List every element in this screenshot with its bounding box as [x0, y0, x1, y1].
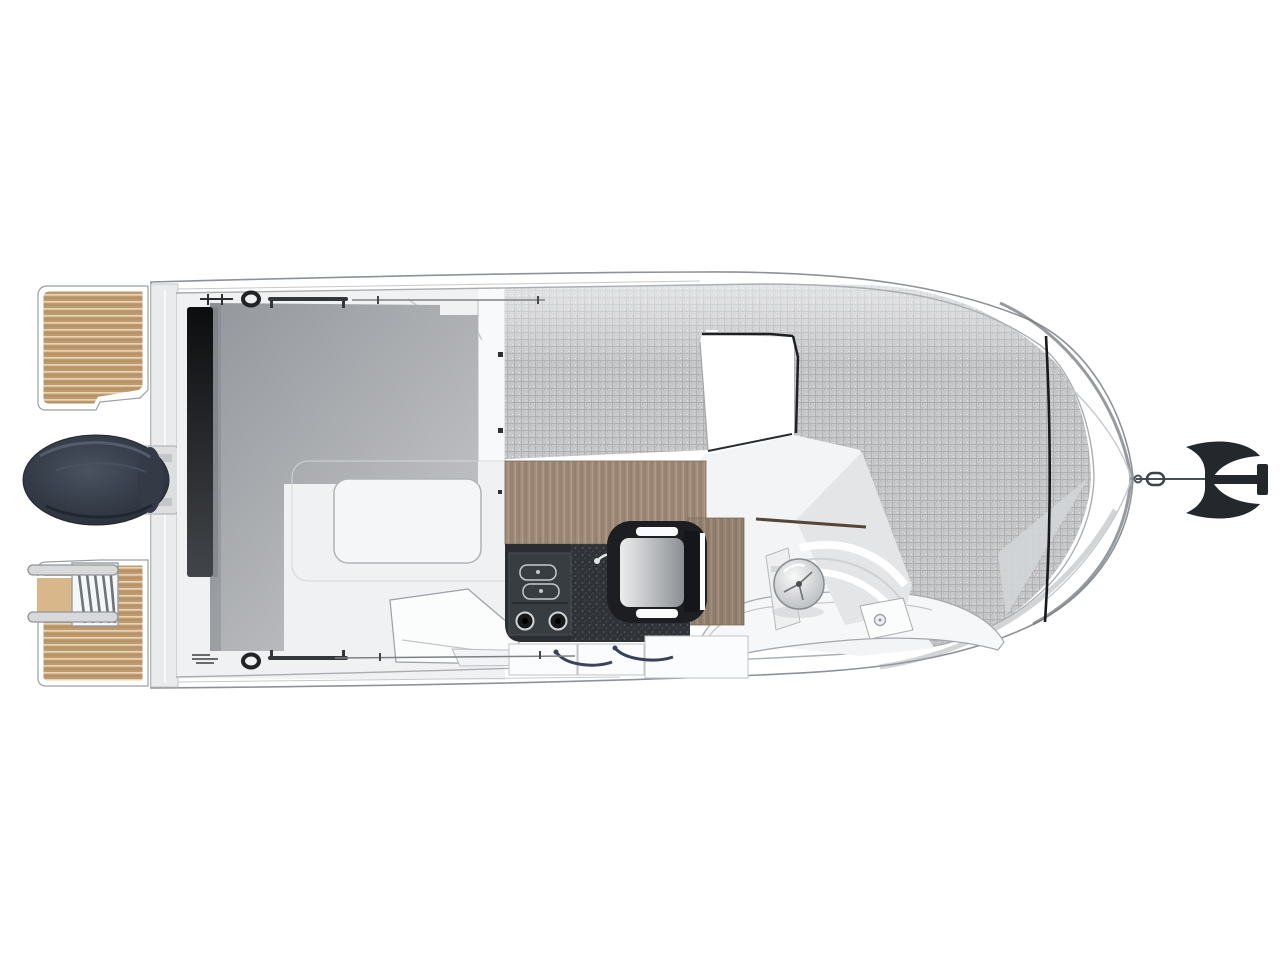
rail-stub — [342, 301, 345, 308]
pillar-fastener — [498, 352, 503, 357]
pillar-fastener — [498, 428, 503, 433]
platform-port-teak — [42, 290, 144, 405]
faucet-base — [594, 558, 600, 564]
sliding-door-shadow — [213, 307, 218, 577]
sliding-door — [187, 307, 213, 577]
seat-cushion — [620, 538, 684, 607]
stove-knob-center — [555, 618, 561, 624]
seat-back-gap — [700, 533, 705, 610]
rail-stub — [270, 650, 273, 657]
drawer-handle-end — [554, 650, 559, 655]
stove-knob-center — [522, 618, 528, 624]
anchor-assembly — [1135, 441, 1269, 518]
anchor-fluke-top — [1186, 441, 1260, 476]
ladder-rail-bottom — [28, 612, 118, 622]
anchor-stock — [1257, 464, 1268, 495]
pillar-fastener — [498, 490, 502, 494]
ladder-window — [36, 577, 74, 615]
ladder-rail-top — [28, 565, 118, 575]
seat-backrest — [684, 531, 699, 612]
plate-dot — [879, 619, 882, 622]
wheel-hub — [796, 581, 802, 587]
burner-center — [536, 570, 540, 574]
outboard-motor — [23, 435, 178, 525]
drawer-handle-end — [613, 646, 618, 651]
rail-stub — [270, 301, 273, 308]
burner-center — [539, 589, 543, 593]
seat-arm-slot — [636, 527, 678, 536]
deck-plan-canvas — [0, 0, 1280, 960]
galley-cabinet — [645, 636, 748, 678]
anchor-shank — [1205, 475, 1265, 484]
rail-stub — [342, 650, 345, 657]
windshield-pillar-strip — [478, 289, 505, 462]
grab-rail — [268, 297, 348, 301]
boat-deck-plan — [0, 0, 1280, 960]
anchor-fluke-bottom — [1186, 484, 1260, 519]
swim-platform-port — [38, 286, 148, 410]
seat-arm-slot — [636, 609, 678, 618]
helm-seat — [607, 521, 707, 623]
cockpit-floor-hatch — [334, 479, 481, 563]
boarding-ladder — [28, 563, 118, 626]
